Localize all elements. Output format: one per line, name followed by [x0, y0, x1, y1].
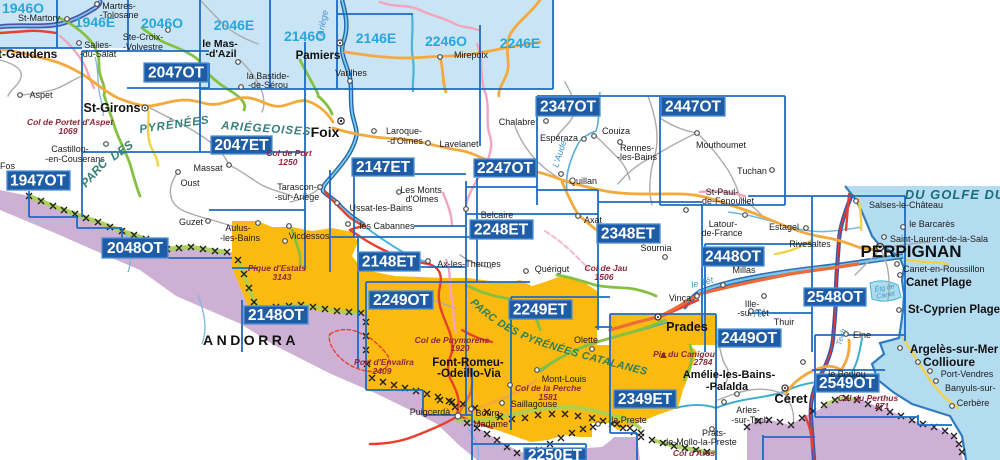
- svg-text:-d'Olmes: -d'Olmes: [387, 136, 423, 146]
- svg-text:271: 271: [874, 401, 889, 411]
- svg-text:2046O: 2046O: [141, 15, 183, 31]
- svg-text:2247OT: 2247OT: [477, 160, 534, 177]
- svg-text:Elne: Elne: [853, 330, 871, 340]
- svg-text:Thuir: Thuir: [774, 317, 795, 327]
- svg-text:2448OT: 2448OT: [705, 249, 762, 266]
- svg-text:Prades: Prades: [666, 320, 708, 334]
- svg-text:1946E: 1946E: [75, 14, 115, 30]
- svg-text:Fos: Fos: [0, 161, 16, 171]
- svg-text:Têt: Têt: [752, 309, 766, 319]
- svg-text:2246O: 2246O: [425, 33, 467, 49]
- svg-text:Oust: Oust: [180, 178, 200, 188]
- svg-text:Quillan: Quillan: [569, 176, 597, 186]
- svg-text:Rivesaltes: Rivesaltes: [789, 239, 831, 249]
- svg-text:2250ET: 2250ET: [528, 447, 583, 460]
- svg-text:Vicdessos: Vicdessos: [289, 231, 330, 241]
- svg-text:les Cabannes: les Cabannes: [359, 221, 415, 231]
- svg-text:Bourg-: Bourg-: [475, 408, 502, 418]
- svg-text:2784: 2784: [693, 357, 713, 367]
- svg-text:2348ET: 2348ET: [601, 226, 656, 243]
- svg-text:-de-Sérou: -de-Sérou: [248, 80, 288, 90]
- svg-text:Amélie-les-Bains-: Amélie-les-Bains-: [683, 369, 776, 381]
- svg-text:Estagel: Estagel: [769, 222, 799, 232]
- svg-text:Chalabre: Chalabre: [499, 117, 536, 127]
- svg-text:Cerbère: Cerbère: [957, 398, 990, 408]
- svg-text:Foix: Foix: [311, 124, 340, 140]
- svg-text:2047OT: 2047OT: [148, 65, 205, 82]
- svg-text:DU GOLFE DU: DU GOLFE DU: [905, 187, 1000, 202]
- svg-text:Mirepoix: Mirepoix: [454, 50, 489, 60]
- svg-text:2048OT: 2048OT: [107, 240, 164, 257]
- svg-text:Ax-les-Thermes: Ax-les-Thermes: [437, 259, 501, 269]
- svg-text:2409: 2409: [372, 366, 392, 376]
- svg-text:de-France: de-France: [701, 228, 742, 238]
- svg-text:2046E: 2046E: [214, 17, 254, 33]
- svg-text:2449OT: 2449OT: [721, 330, 778, 347]
- svg-text:Aulus-: Aulus-: [225, 223, 251, 233]
- svg-text:St-Gaudens: St-Gaudens: [0, 47, 58, 61]
- svg-text:2249OT: 2249OT: [373, 292, 430, 309]
- svg-text:Guzet: Guzet: [179, 217, 204, 227]
- svg-text:2349ET: 2349ET: [618, 391, 673, 408]
- svg-text:2249ET: 2249ET: [513, 302, 568, 319]
- svg-text:Laroque-: Laroque-: [386, 126, 422, 136]
- svg-text:-Odeillo-Via: -Odeillo-Via: [437, 368, 501, 380]
- svg-text:Millas: Millas: [732, 265, 756, 275]
- svg-text:1581: 1581: [539, 392, 558, 402]
- svg-text:-les-Bains: -les-Bains: [220, 233, 261, 243]
- svg-text:2548OT: 2548OT: [807, 289, 864, 306]
- svg-text:Ussat-les-Bains: Ussat-les-Bains: [349, 203, 413, 213]
- svg-text:Aspet: Aspet: [29, 90, 53, 100]
- svg-text:Olette: Olette: [574, 335, 598, 345]
- svg-text:Port-Vendres: Port-Vendres: [941, 369, 994, 379]
- svg-text:-Madame: -Madame: [470, 419, 508, 429]
- svg-text:Canet-en-Roussillon: Canet-en-Roussillon: [903, 264, 985, 274]
- svg-text:St-Girons: St-Girons: [84, 101, 141, 115]
- svg-text:Belcaire: Belcaire: [481, 210, 514, 220]
- svg-text:-du-Salat: -du-Salat: [80, 49, 117, 59]
- svg-text:1506: 1506: [595, 272, 614, 282]
- svg-text:Tuchan: Tuchan: [737, 166, 767, 176]
- svg-text:2447OT: 2447OT: [665, 99, 722, 116]
- svg-text:2148ET: 2148ET: [362, 254, 417, 271]
- svg-text:de-Fenouillet: de-Fenouillet: [702, 196, 755, 206]
- svg-text:Col du Perthus: Col du Perthus: [838, 393, 899, 403]
- svg-text:Varilhes: Varilhes: [335, 68, 367, 78]
- svg-text:St-Cyprien Plage: St-Cyprien Plage: [908, 304, 1000, 316]
- svg-text:Vinça: Vinça: [669, 293, 691, 303]
- svg-text:Collioure: Collioure: [923, 355, 975, 369]
- svg-text:1947OT: 1947OT: [10, 173, 67, 190]
- svg-text:-sur-Tech: -sur-Tech: [731, 415, 769, 425]
- svg-text:Puigcerdà: Puigcerdà: [410, 407, 451, 417]
- svg-text:Ste-Croix-: Ste-Croix-: [123, 32, 164, 42]
- svg-text:2047ET: 2047ET: [214, 137, 269, 154]
- svg-text:Massat: Massat: [193, 163, 223, 173]
- svg-text:Pamiers: Pamiers: [296, 50, 341, 62]
- svg-text:Saint-Laurent-de-la-Sala: Saint-Laurent-de-la-Sala: [890, 234, 988, 244]
- svg-text:ANDORRA: ANDORRA: [203, 332, 299, 348]
- svg-text:-sur-Ariège: -sur-Ariège: [275, 192, 320, 202]
- svg-text:2148OT: 2148OT: [248, 307, 305, 324]
- svg-text:Sournia: Sournia: [640, 243, 671, 253]
- svg-text:-Volvestre: -Volvestre: [123, 42, 163, 52]
- svg-text:Quérigut: Quérigut: [535, 264, 570, 274]
- svg-text:2146E: 2146E: [356, 30, 396, 46]
- svg-text:Mouthoumet: Mouthoumet: [696, 140, 747, 150]
- svg-text:Col d'Ares: Col d'Ares: [673, 448, 715, 458]
- svg-text:3143: 3143: [273, 272, 292, 282]
- svg-text:Tarascon-: Tarascon-: [277, 182, 317, 192]
- svg-text:Castillon-: Castillon-: [51, 144, 89, 154]
- svg-text:1920: 1920: [451, 343, 470, 353]
- svg-text:de-Mollo-la-Preste: de-Mollo-la-Preste: [663, 437, 737, 447]
- svg-text:PERPIGNAN: PERPIGNAN: [860, 242, 961, 261]
- svg-text:Céret: Céret: [774, 391, 808, 406]
- svg-text:le Boulou: le Boulou: [828, 369, 866, 379]
- svg-text:Axat: Axat: [584, 215, 603, 225]
- svg-text:Banyuls-sur-: Banyuls-sur-: [945, 383, 996, 393]
- svg-text:le Barcarès: le Barcarès: [909, 219, 955, 229]
- svg-text:Arles-: Arles-: [736, 405, 760, 415]
- svg-text:Canet Plage: Canet Plage: [906, 277, 972, 289]
- svg-text:2147ET: 2147ET: [356, 159, 411, 176]
- svg-text:-les-Bains: -les-Bains: [617, 152, 658, 162]
- svg-text:la Preste: la Preste: [611, 415, 647, 425]
- svg-text:2347OT: 2347OT: [540, 99, 597, 116]
- svg-text:-d'Azil: -d'Azil: [205, 48, 236, 60]
- svg-text:Couiza: Couiza: [602, 126, 630, 136]
- svg-text:1069: 1069: [59, 126, 78, 136]
- svg-text:1946O: 1946O: [2, 0, 44, 16]
- svg-text:-Palalda: -Palalda: [706, 381, 749, 393]
- svg-text:Lavelanet: Lavelanet: [439, 139, 479, 149]
- svg-text:2246E: 2246E: [500, 35, 540, 51]
- svg-text:2248ET: 2248ET: [474, 222, 529, 239]
- svg-text:1250: 1250: [279, 157, 298, 167]
